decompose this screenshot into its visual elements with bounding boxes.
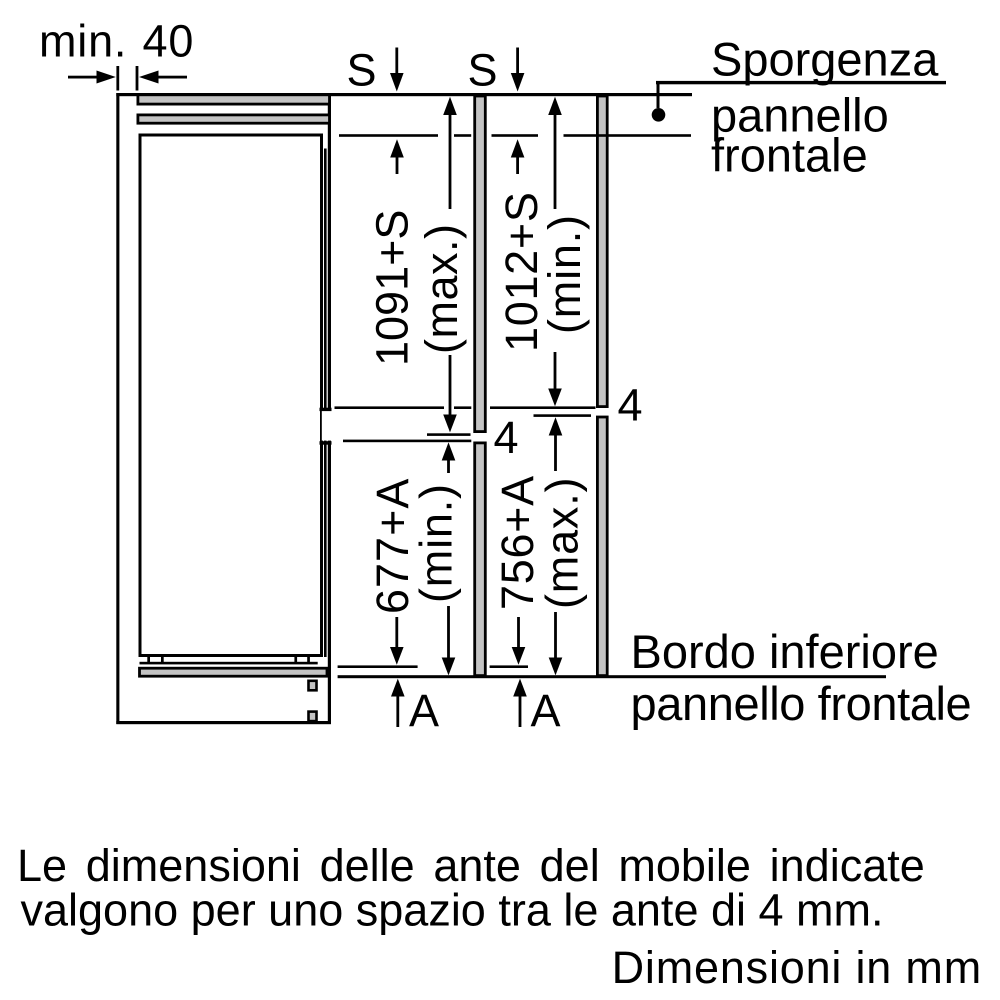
svg-text:Sporgenza: Sporgenza [711,33,939,86]
svg-text:pannello frontale: pannello frontale [631,677,972,730]
svg-text:756+A: 756+A [492,475,543,610]
svg-text:(max.): (max.) [416,224,467,355]
svg-text:A: A [531,685,561,736]
svg-text:frontale: frontale [711,129,868,182]
svg-text:S: S [347,45,377,96]
svg-text:1091+S: 1091+S [367,210,418,366]
svg-text:Le dimensioni delle ante del m: Le dimensioni delle ante del mobile indi… [17,840,925,891]
svg-text:4: 4 [494,412,519,463]
svg-text:(min.): (min.) [411,483,462,603]
svg-text:valgono per uno spazio tra le: valgono per uno spazio tra le ante di 4 … [21,885,884,936]
svg-text:Bordo inferiore: Bordo inferiore [631,625,939,678]
svg-text:S: S [468,45,498,96]
svg-text:(min.): (min.) [539,214,590,334]
svg-text:A: A [409,685,439,736]
svg-text:min. 40: min. 40 [39,16,194,67]
svg-text:(max.): (max.) [537,477,588,609]
svg-text:4: 4 [618,380,643,431]
svg-text:Dimensioni in mm: Dimensioni in mm [612,942,982,993]
